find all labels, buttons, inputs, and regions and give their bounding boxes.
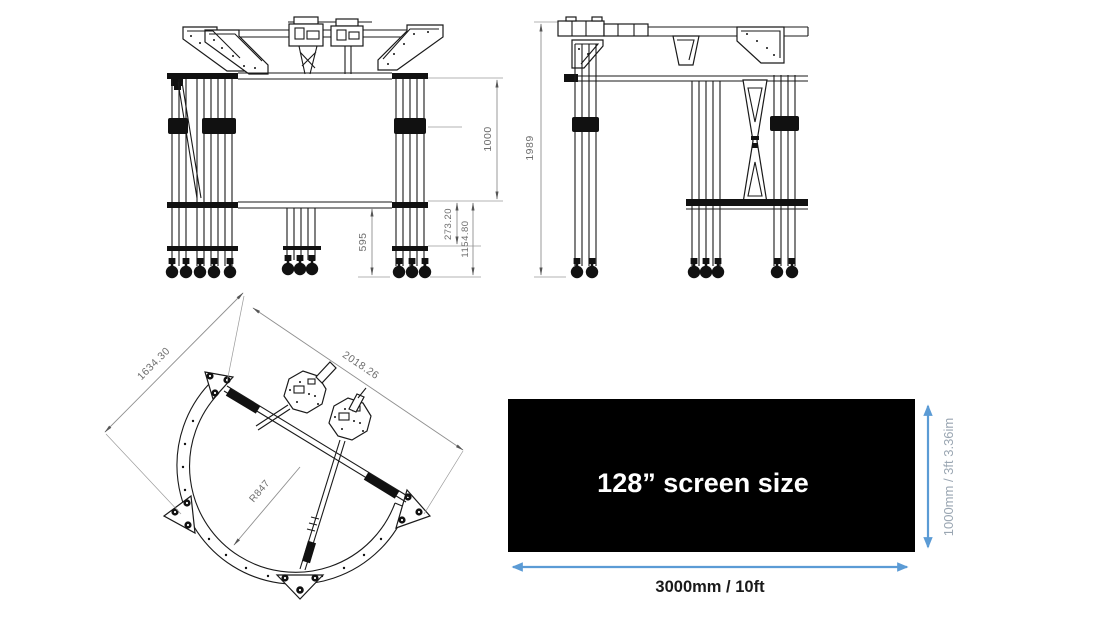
dim-label-2018-26: 2018.26 (340, 349, 381, 382)
dim-label-1634-30: 1634.30 (135, 345, 173, 383)
side-view-drawing: 1989 (524, 17, 808, 278)
ring-bolt-dots (182, 420, 382, 577)
top-view-drawing: 1634.30 2018.26 R847 (105, 293, 463, 599)
screen-size-label: 128” screen size (597, 468, 809, 498)
dim-label-1000: 1000 (482, 126, 494, 151)
dim-label-273-20: 273.20 (443, 208, 454, 240)
telescopic-arms (224, 386, 409, 570)
drawing-svg: 595 273.20 1154.80 1000 1989 (0, 0, 1098, 618)
screen-size-diagram: 128” screen size 3000mm / 10ft 1000mm / … (508, 399, 956, 596)
front-view-drawing: 595 273.20 1154.80 1000 (166, 17, 503, 278)
dim-label-1989: 1989 (524, 135, 536, 160)
technical-drawing-sheet: 595 273.20 1154.80 1000 1989 (0, 0, 1098, 618)
dim-label-595: 595 (357, 232, 369, 251)
screen-height-label: 1000mm / 3ft 3.36im (941, 418, 956, 537)
screen-width-label: 3000mm / 10ft (655, 578, 765, 596)
dim-label-r847: R847 (248, 478, 273, 505)
dim-label-1154-80: 1154.80 (460, 220, 471, 257)
